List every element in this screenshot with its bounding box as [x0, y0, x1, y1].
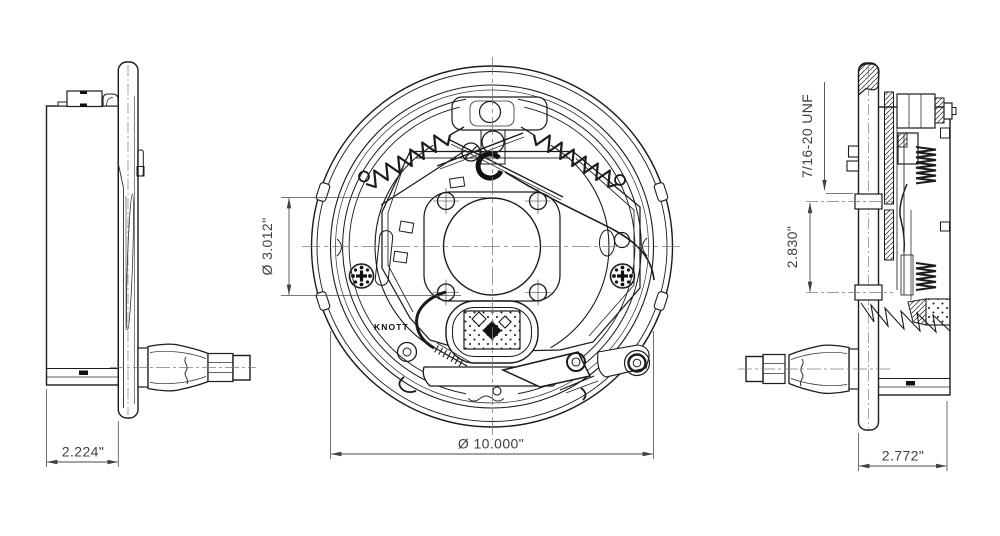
brand-logo: KNOTT	[374, 322, 409, 332]
left-web-bump	[337, 239, 342, 256]
actuator-boss	[103, 94, 118, 106]
band-key-right	[906, 381, 915, 386]
brake-cable	[505, 172, 654, 280]
anchor-pin	[480, 102, 501, 123]
adjuster-barrel	[897, 94, 935, 128]
dim-label-2772: 2.772"	[882, 448, 924, 464]
right-spring-coil	[534, 135, 618, 187]
drum-top-step	[58, 102, 67, 106]
adjuster-access-hole-left	[350, 264, 374, 288]
drawing-sheet: 2.224"	[0, 0, 1000, 536]
magnet-section	[926, 299, 950, 325]
band-key	[79, 371, 88, 376]
actuating-rods	[381, 133, 654, 280]
dim-label-2830: 2.830"	[784, 226, 800, 268]
left-spring-coil	[366, 135, 450, 187]
dim-label-3012: Ø 3.012"	[259, 218, 275, 276]
magnet-tick-top	[80, 91, 87, 94]
adjuster-access-hole-right	[611, 264, 635, 288]
dim-label-unf: 7/16-20 UNF	[799, 94, 815, 179]
drum-profile	[47, 106, 119, 385]
magnet-tick-bottom	[80, 104, 87, 107]
hold-down-spring	[468, 396, 504, 401]
top-anchor-assembly	[381, 97, 654, 280]
plate-hole-bottom-left	[398, 343, 417, 362]
dimension-stud-thread: 7/16-20 UNF	[799, 82, 853, 194]
left-web-slot	[375, 230, 394, 286]
adjuster-bolt-head	[944, 103, 952, 119]
shoe-hook-right	[581, 388, 586, 400]
right-section-view: 7/16-20 UNF 2.830" 2.772"	[738, 63, 956, 471]
dimension-stud-spacing: 2.830"	[784, 203, 810, 292]
cam-plate	[598, 345, 649, 377]
rim-notch-2	[941, 222, 950, 231]
front-view: KNOTT	[259, 57, 684, 459]
magnet-assembly	[446, 301, 538, 363]
dim-label-2224: 2.224"	[62, 444, 104, 460]
technical-drawing: 2.224"	[0, 0, 1000, 536]
dim-label-10000: Ø 10.000"	[458, 436, 524, 452]
bracket-section	[885, 92, 894, 204]
rim-notch-1	[941, 128, 950, 138]
right-web-cutout	[600, 230, 615, 256]
dimension-mounting-depth: 2.224"	[47, 389, 119, 467]
left-side-view: 2.224"	[47, 62, 257, 467]
